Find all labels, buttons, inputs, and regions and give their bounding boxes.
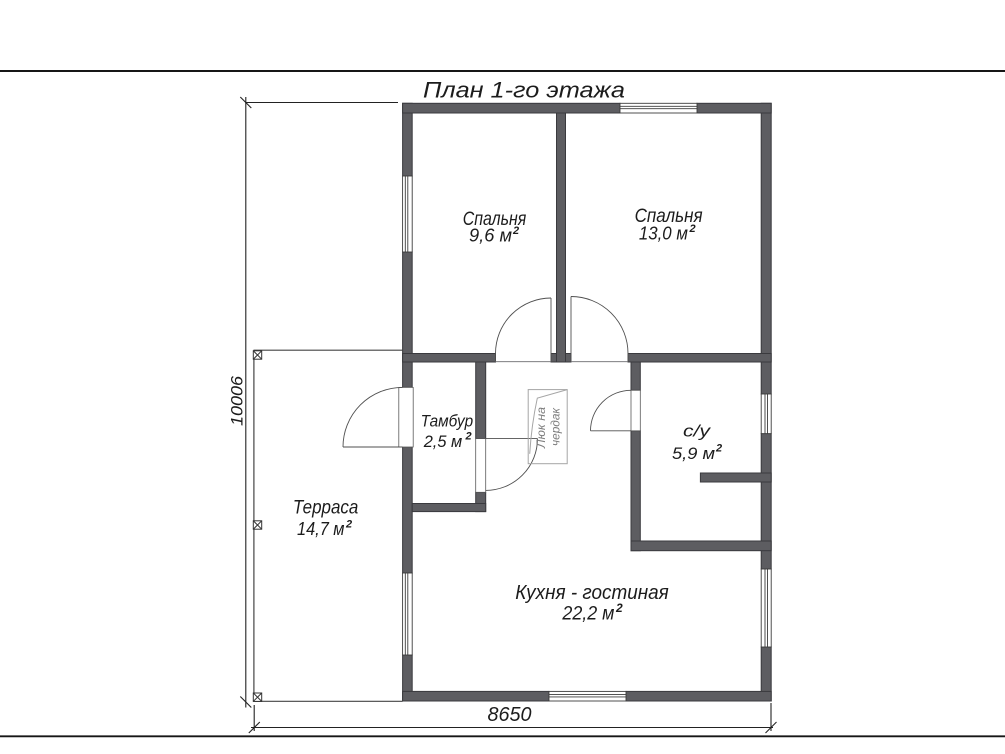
svg-text:10006: 10006 [227, 375, 246, 426]
svg-text:2: 2 [512, 225, 519, 237]
svg-text:8650: 8650 [488, 704, 532, 726]
svg-text:2: 2 [465, 431, 472, 443]
svg-text:Терраса: Терраса [293, 498, 359, 519]
svg-text:2: 2 [615, 601, 623, 615]
svg-text:Люк на: Люк на [536, 407, 548, 449]
svg-text:22,2 м: 22,2 м [561, 604, 614, 625]
svg-text:2: 2 [345, 519, 352, 531]
svg-text:9,6 м: 9,6 м [469, 225, 512, 246]
svg-text:14,7 м: 14,7 м [297, 519, 345, 539]
svg-text:чердак: чердак [551, 407, 563, 446]
svg-text:2: 2 [689, 223, 696, 235]
svg-text:2: 2 [715, 443, 722, 455]
svg-text:13,0 м: 13,0 м [639, 223, 688, 244]
svg-text:с/у: с/у [683, 422, 712, 441]
svg-text:Кухня - гостиная: Кухня - гостиная [515, 582, 669, 604]
svg-text:Тамбур: Тамбур [421, 411, 474, 430]
svg-text:5,9 м: 5,9 м [672, 444, 715, 463]
svg-text:План 1-го этажа: План 1-го этажа [423, 78, 625, 103]
svg-text:2,5 м: 2,5 м [423, 432, 463, 451]
